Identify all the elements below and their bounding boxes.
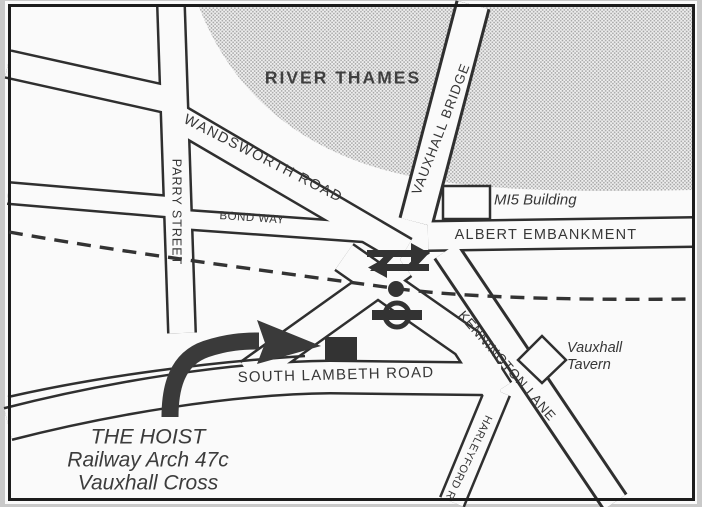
albert-embankment-label: ALBERT EMBANKMENT	[455, 228, 638, 243]
vauxhall-tavern-line1: Vauxhall	[567, 340, 622, 357]
map-page: RIVER THAMES WANDSWORTH ROAD BOND WAY PA…	[0, 0, 702, 507]
venue-text-block: THE HOIST Railway Arch 47c Vauxhall Cros…	[67, 426, 228, 495]
venue-marker-square	[325, 337, 357, 361]
mi5-building-shape	[443, 186, 490, 219]
venue-name: THE HOIST	[67, 426, 228, 449]
vauxhall-tavern-label: Vauxhall Tavern	[567, 340, 622, 374]
station-dot-icon	[388, 281, 404, 297]
vauxhall-tavern-line2: Tavern	[567, 357, 622, 374]
venue-address-1: Railway Arch 47c	[67, 449, 228, 472]
venue-address-2: Vauxhall Cross	[67, 472, 228, 495]
mi5-building-label: MI5 Building	[494, 193, 577, 208]
river-thames-label: RIVER THAMES	[265, 69, 421, 87]
parry-street-label: PARRY STREET	[170, 159, 183, 265]
